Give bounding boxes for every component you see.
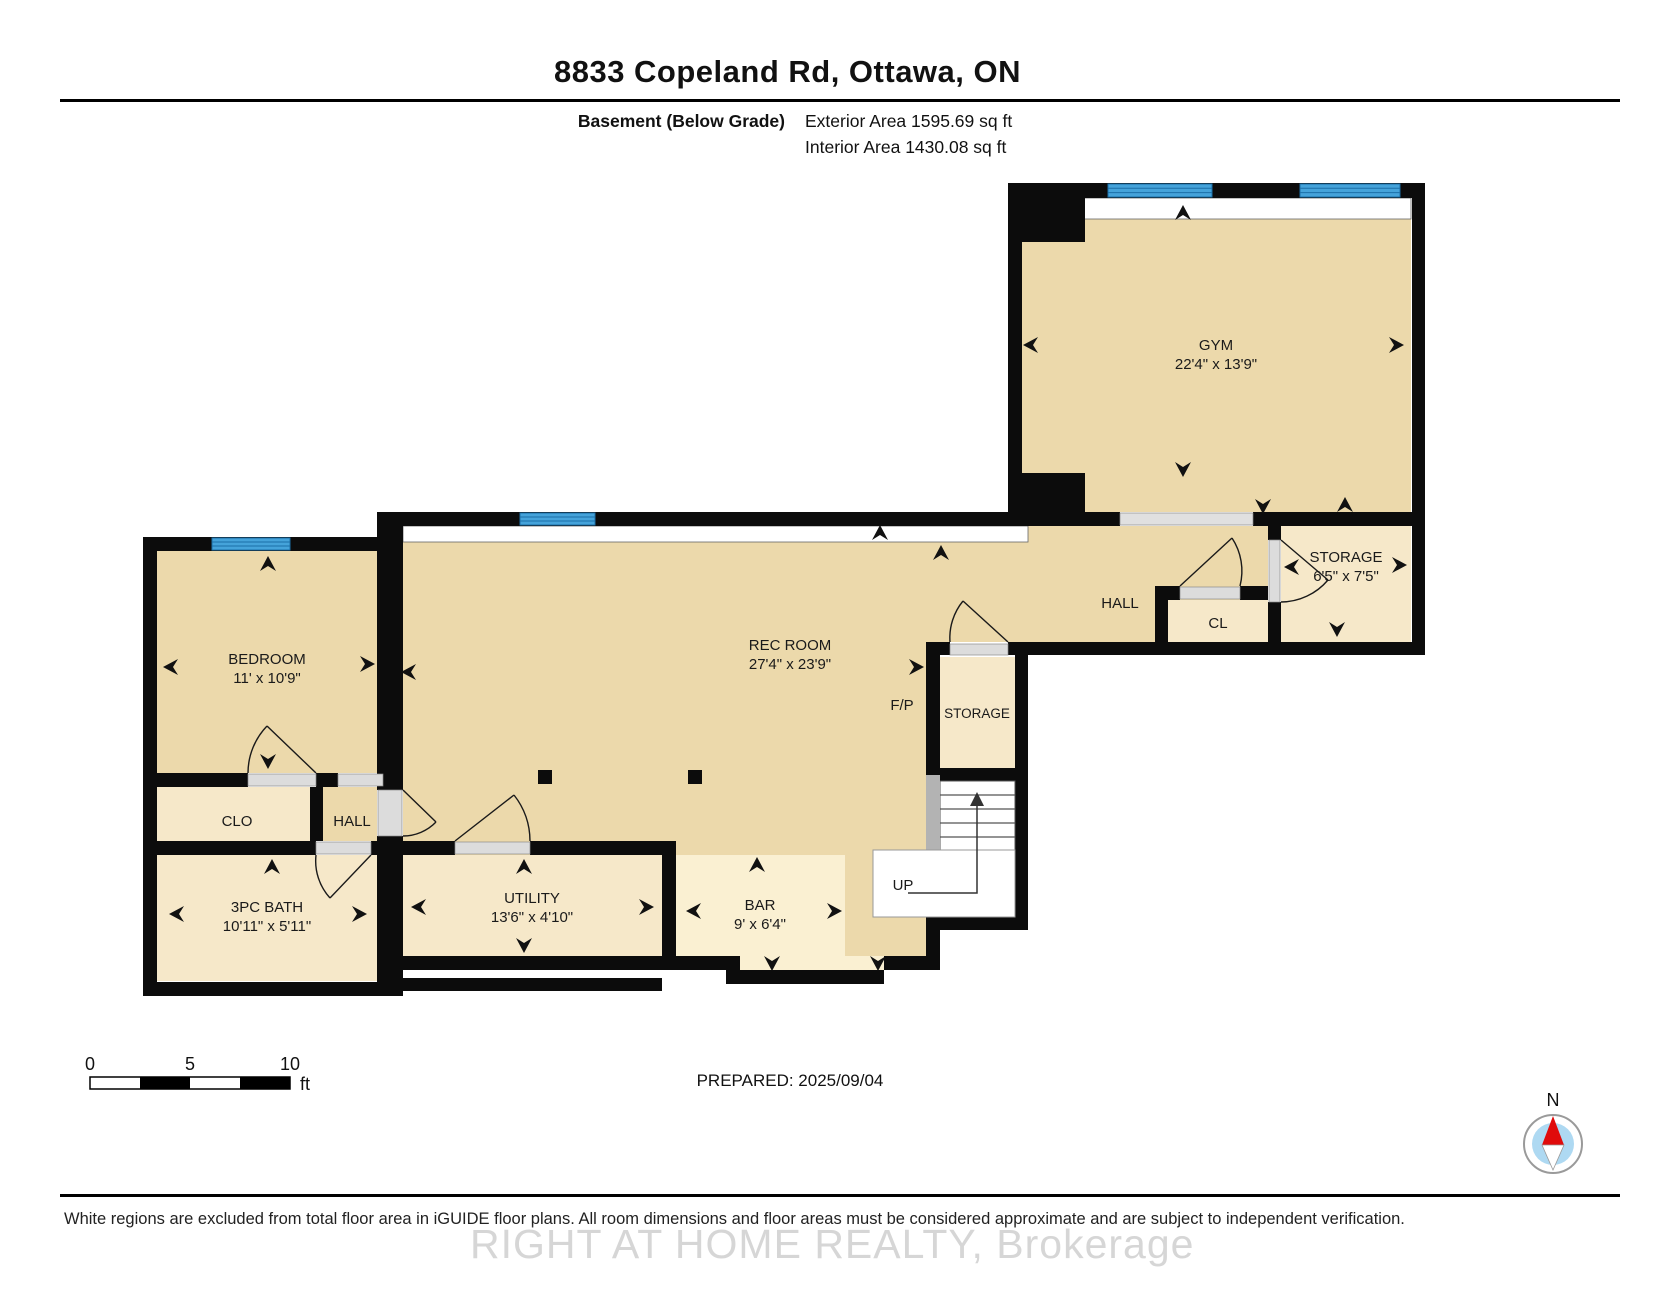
floorplan-page: 8833 Copeland Rd, Ottawa, ON Basement (B… [0, 0, 1680, 1299]
hall-left-label: HALL [333, 813, 371, 830]
bath-label: 3PC BATH [231, 899, 303, 916]
gym-window-1 [1108, 184, 1212, 197]
scale-tick-5: 5 [185, 1054, 195, 1074]
storage-small-label: STORAGE [944, 706, 1010, 721]
brokerage-watermark: RIGHT AT HOME REALTY, Brokerage [470, 1221, 1194, 1268]
bar-label: BAR [745, 897, 776, 914]
bath-dims: 10'11" x 5'11" [223, 918, 311, 935]
utility-dims: 13'6" x 4'10" [491, 909, 573, 926]
storage-right-label: STORAGE [1309, 549, 1382, 566]
gym-label: GYM [1199, 337, 1233, 354]
bedroom-dims: 11' x 10'9" [233, 670, 301, 687]
rec-room-label: REC ROOM [749, 637, 832, 654]
cl-label: CL [1208, 615, 1227, 632]
footer-divider [60, 1194, 1620, 1197]
bar-floor-notch [726, 956, 884, 970]
rec-excluded-strip [403, 526, 1028, 542]
bedroom-window [212, 538, 290, 550]
gym-dims: 22'4" x 13'9" [1175, 356, 1257, 373]
utility-label: UTILITY [504, 890, 560, 907]
compass-north-label: N [1547, 1090, 1560, 1110]
scale-unit: ft [300, 1074, 310, 1094]
floorplan-drawing: GYM 22'4" x 13'9" HALL STORAGE 6'5" x 7'… [0, 0, 1680, 1299]
storage-right-dims: 6'5" x 7'5" [1313, 568, 1379, 585]
gym-opening [1120, 513, 1253, 525]
closet-label: CLO [222, 813, 253, 830]
bar-dims: 9' x 6'4" [734, 916, 786, 933]
fireplace-label: F/P [890, 697, 913, 714]
scale-tick-0: 0 [85, 1054, 95, 1074]
compass: N [1524, 1090, 1582, 1173]
gym-window-2 [1300, 184, 1400, 197]
stair-rail [926, 775, 940, 850]
gym-floor [1022, 198, 1411, 512]
prepared-date: PREPARED: 2025/09/04 [600, 1071, 980, 1091]
rec-room-window [520, 513, 595, 525]
rec-room-dims: 27'4" x 23'9" [749, 656, 831, 673]
scale-bar: 0 5 10 ft [85, 1054, 310, 1094]
hall-right-label: HALL [1101, 595, 1139, 612]
stairs-up-label: UP [893, 877, 914, 894]
bedroom-label: BEDROOM [228, 651, 306, 668]
scale-tick-10: 10 [280, 1054, 300, 1074]
